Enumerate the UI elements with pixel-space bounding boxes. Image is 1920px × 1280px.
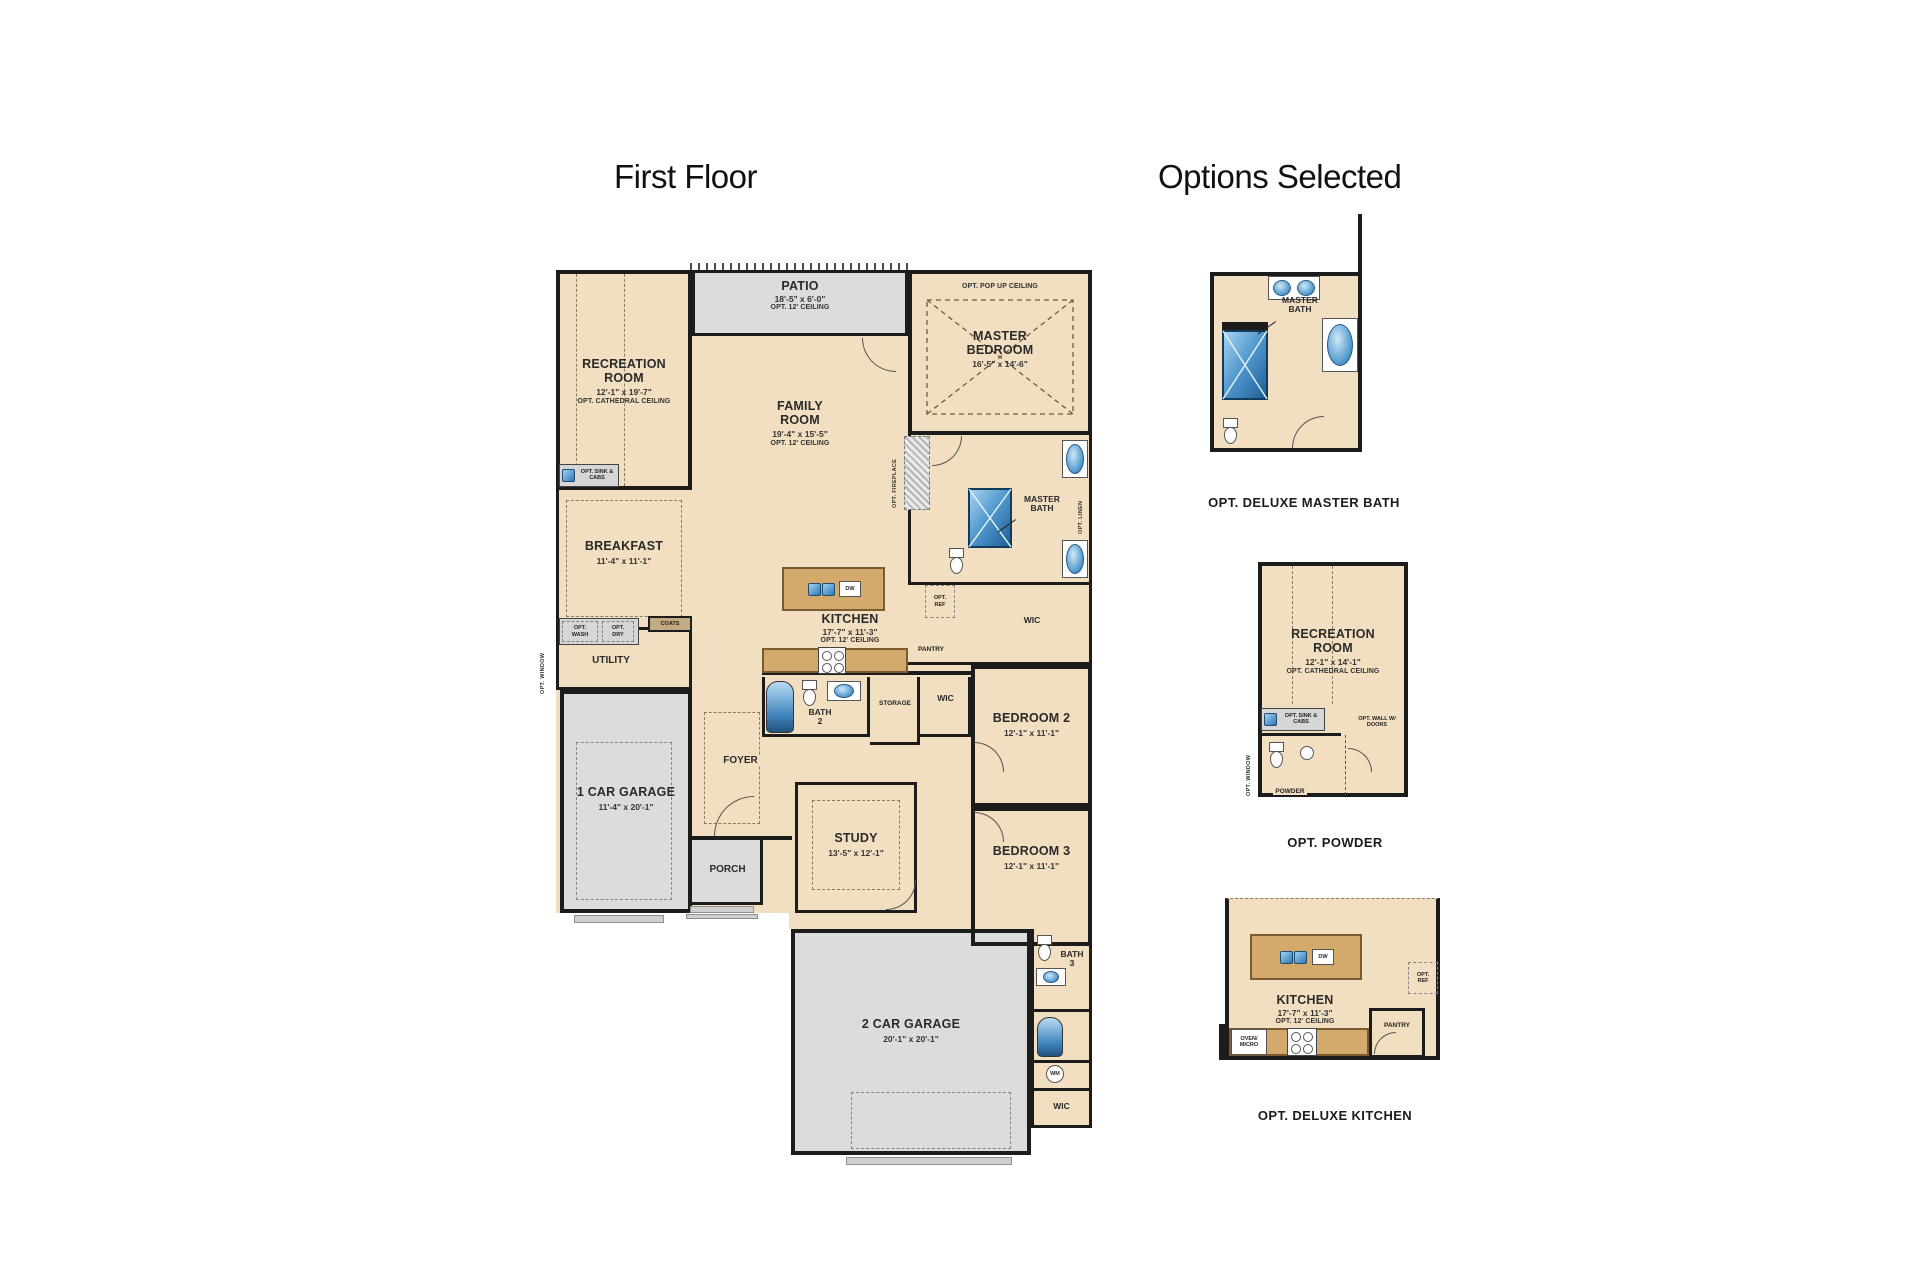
toilet-bowl [803, 689, 816, 706]
wall-stub [1219, 1024, 1229, 1060]
sink-icon [827, 681, 861, 701]
opt-wash-label: OPT. WASH [567, 625, 593, 637]
shower-icon [968, 488, 1012, 548]
burner [1303, 1032, 1313, 1042]
patio-hatch-edge [690, 263, 910, 270]
garden-tub-icon [1322, 318, 1358, 372]
opt-sink-cabs-label: OPT. SINK & CABS [1278, 713, 1324, 725]
label-pop-up-ceiling: OPT. POP UP CEILING [908, 282, 1092, 290]
label-breakfast: BREAKFAST 11'-4" x 11'-1" [556, 540, 692, 566]
shower-icon [1222, 330, 1268, 400]
toilet-bowl [1224, 427, 1237, 444]
label-master-bath: MASTER BATH [1018, 495, 1066, 514]
sink-icon [1264, 713, 1277, 726]
garage-dashed-outline [576, 742, 672, 900]
tub-icon [1037, 1017, 1063, 1057]
sink-basin [1066, 444, 1084, 474]
label-bath-2: BATH 2 [800, 708, 840, 727]
burner [834, 663, 844, 673]
label-powder: POWDER [1256, 780, 1324, 798]
label-family-room: FAMILY ROOM 19'-4" x 15'-5" OPT. 12' CEI… [692, 400, 908, 447]
sink-icon [1036, 968, 1066, 986]
opt-window-label: OPT. WINDOW [1246, 752, 1252, 796]
sink-icon [562, 469, 575, 482]
label-storage: STORAGE [868, 700, 922, 707]
caption-deluxe-master-bath: OPT. DELUXE MASTER BATH [1199, 495, 1409, 510]
opt-washer-box: OPT. WASH [562, 621, 598, 642]
sink-icon [1294, 951, 1307, 964]
garage-dashed-outline [851, 1092, 1011, 1149]
label-2-car-garage: 2 CAR GARAGE 20'-1" x 20'-1" [791, 1018, 1031, 1044]
toilet-icon [801, 680, 817, 706]
opt-linen-label: OPT. LINEN [1078, 486, 1084, 534]
opt-sink-cabs-label: OPT. SINK & CABS [576, 469, 618, 481]
first-floor-title: First Floor [614, 158, 757, 196]
burner [1291, 1044, 1301, 1054]
fireplace-icon [904, 436, 930, 510]
label-wic-3: WIC [1031, 1102, 1092, 1111]
sink-basin [1273, 280, 1291, 296]
toilet-bowl [1038, 944, 1051, 961]
label-master-wic: WIC [1005, 616, 1059, 625]
tub-basin [1327, 324, 1353, 366]
toilet-icon [1268, 742, 1284, 768]
label-utility: UTILITY [556, 655, 666, 666]
cooktop-icon [818, 647, 846, 674]
toilet-icon [948, 548, 964, 574]
label-opt-master-bath: MASTER BATH [1272, 296, 1328, 315]
label-porch: PORCH [692, 864, 763, 875]
wall-stub [1358, 214, 1362, 276]
sink-basin [1297, 280, 1315, 296]
label-foyer: FOYER [692, 750, 789, 768]
sink-icon [808, 583, 821, 596]
opt-dryer-box: OPT. DRY [602, 621, 634, 642]
label-1-car-garage: 1 CAR GARAGE 11'-4" x 20'-1" [560, 786, 692, 812]
label-patio: PATIO 18'-5" x 6'-0" OPT. 12' CEILING [692, 280, 908, 311]
options-selected-title: Options Selected [1158, 158, 1401, 196]
label-study: STUDY 13'-5" x 12'-1" [795, 832, 917, 858]
label-bedroom-3: BEDROOM 3 12'-1" x 11'-1" [971, 845, 1092, 871]
label-bedroom-2: BEDROOM 2 12'-1" x 11'-1" [971, 712, 1092, 738]
sink-icon [822, 583, 835, 596]
label-pantry: PANTRY [906, 646, 956, 653]
label-wic-2: WIC [920, 694, 971, 703]
label-opt-kitchen: KITCHEN 17'-7" x 11'-3" OPT. 12' CEILING [1225, 994, 1385, 1025]
opt-dry-label: OPT. DRY [607, 625, 629, 637]
washer-icon: WM [1046, 1065, 1064, 1083]
label-opt-wall-doors: OPT. WALL W/ DOORS [1350, 716, 1404, 728]
burner [822, 651, 832, 661]
opt-fireplace-label: OPT. FIREPLACE [892, 442, 898, 508]
wall-divider [1261, 733, 1341, 736]
tub-icon [766, 681, 794, 733]
burner [834, 651, 844, 661]
dishwasher-icon: DW [1312, 949, 1334, 965]
floor-plan-page: First Floor Options Selected [0, 0, 1920, 1280]
toilet-bowl [950, 557, 963, 574]
label-opt-pantry: PANTRY [1369, 1022, 1425, 1029]
label-opt-recreation-room: RECREATION ROOM 12'-1" x 14'-1" OPT. CAT… [1258, 628, 1408, 675]
wall-storage [870, 677, 920, 745]
sink-icon [1062, 440, 1088, 478]
opt-ref-box: OPT. REF [925, 585, 955, 618]
opt-sink-cabs-counter: OPT. SINK & CABS [1261, 708, 1325, 731]
label-recreation-room: RECREATION ROOM 12'-1" x 19'-7" OPT. CAT… [556, 358, 692, 405]
opt-window-label: OPT. WINDOW [540, 646, 546, 694]
sink-basin [1066, 544, 1084, 574]
toilet-bowl [1270, 751, 1283, 768]
toilet-icon [1222, 418, 1238, 444]
garage-door [574, 915, 664, 923]
wall-stub [1222, 322, 1268, 330]
oven-micro-label: OVEN/ MICRO [1236, 1036, 1262, 1048]
caption-opt-powder: OPT. POWDER [1240, 835, 1430, 850]
sink-basin [1043, 971, 1059, 983]
opt-ref-label: OPT. REF [930, 595, 950, 607]
porch-step [686, 914, 758, 919]
wall-divider [1031, 1088, 1092, 1091]
pedestal-sink-icon [1300, 746, 1314, 760]
toilet-icon [1036, 935, 1052, 961]
dishwasher-icon: DW [839, 581, 861, 597]
opt-sink-cabs-counter: OPT. SINK & CABS [559, 464, 619, 487]
sink-basin [834, 684, 854, 698]
opt-wall-dashed [1345, 735, 1346, 795]
oven-micro-box: OVEN/ MICRO [1231, 1029, 1267, 1055]
label-bath-3: BATH 3 [1056, 950, 1088, 969]
garage-door [846, 1157, 1012, 1165]
coats-closet: COATS [648, 616, 692, 632]
kitchen-island: DW [1250, 934, 1362, 980]
wall-wic-2 [920, 677, 971, 737]
burner [1303, 1044, 1313, 1054]
burner [822, 663, 832, 673]
porch-step [690, 906, 754, 913]
sink-icon [1280, 951, 1293, 964]
label-kitchen: KITCHEN 17'-7" x 11'-3" OPT. 12' CEILING [800, 613, 900, 644]
sink-icon [1062, 540, 1088, 578]
caption-deluxe-kitchen: OPT. DELUXE KITCHEN [1215, 1108, 1455, 1123]
kitchen-island: DW [782, 567, 885, 611]
burner [1291, 1032, 1301, 1042]
opt-ref-label: OPT. REF [1413, 972, 1433, 984]
opt-ref-box: OPT. REF [1408, 962, 1438, 994]
label-coats: COATS [661, 621, 680, 627]
cooktop-icon [1287, 1028, 1317, 1056]
wall-divider [1031, 1060, 1092, 1063]
label-master-bedroom: MASTER BEDROOM 16'-5" x 14'-6" [908, 330, 1092, 369]
